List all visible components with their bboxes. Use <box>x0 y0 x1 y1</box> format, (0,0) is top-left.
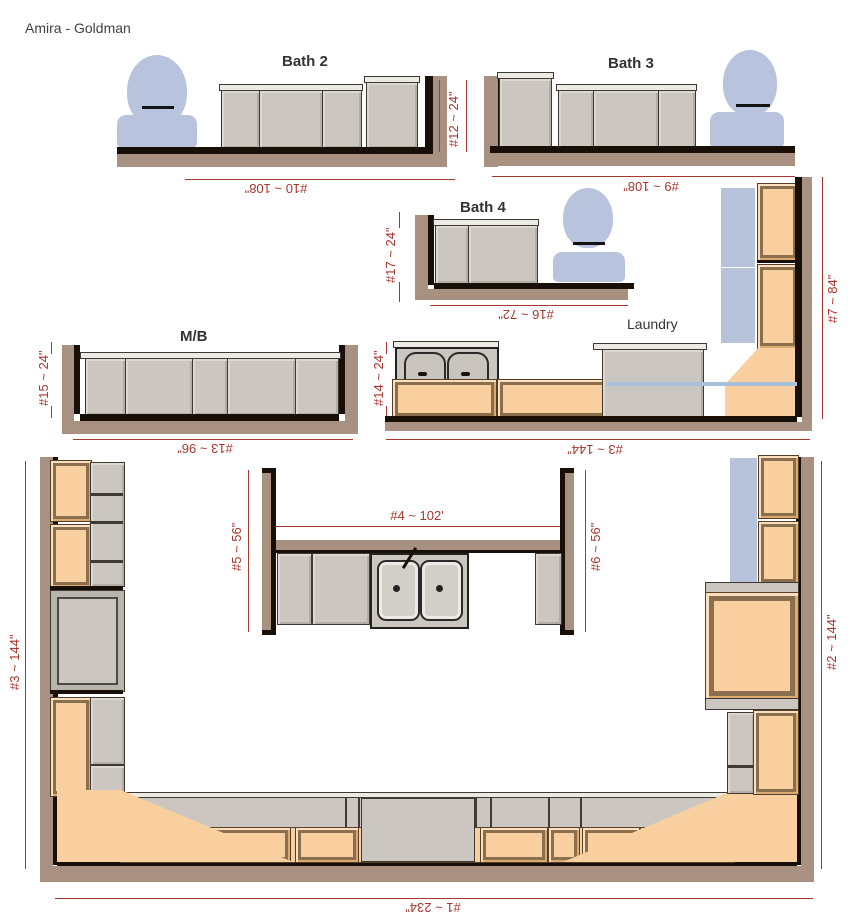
dim15-text: #15 ~ 24" <box>37 354 50 406</box>
dim9-text: #9 ~ 108" <box>591 180 711 193</box>
laundry-wall-edge <box>795 177 802 417</box>
laundry-floor <box>385 422 812 431</box>
mb-cabinet <box>125 358 193 416</box>
bath3-floor <box>484 153 795 166</box>
bath3-toilet-base <box>710 112 784 148</box>
cabinet-separator <box>580 797 582 827</box>
dim13-line <box>73 439 353 440</box>
island-post-cap <box>560 630 574 635</box>
kitchen-range-section <box>361 798 475 862</box>
laundry-label: Laundry <box>627 316 678 332</box>
kitchen-wall-cabinet-door <box>50 524 92 588</box>
bath3-cabinet <box>593 90 659 149</box>
mb-wall-right <box>345 345 358 421</box>
cabinet-separator <box>345 797 347 827</box>
floorplan-canvas: Amira - Goldman Bath 2 #10 ~ 108" #12 ~ … <box>0 0 855 915</box>
island-sink-drain <box>393 585 400 592</box>
cabinet-separator <box>358 797 360 827</box>
kitchen-upper-shelves <box>727 712 755 794</box>
bath2-label: Bath 2 <box>282 53 328 70</box>
dim5-text: #5 ~ 56" <box>230 505 243 589</box>
laundry-base-cabinet-door <box>497 379 609 419</box>
island-cabinet <box>535 553 562 625</box>
bath4-label: Bath 4 <box>460 199 506 216</box>
dim7-text: #7 ~ 84" <box>826 268 839 330</box>
kitchen-wall-cabinet-door <box>50 697 92 797</box>
dim14-text: #14 ~ 24" <box>372 354 385 406</box>
mb-floor <box>62 421 358 434</box>
cabinet-separator <box>548 797 550 827</box>
island-post-cap <box>560 468 574 473</box>
bath4-toilet-base <box>553 252 625 282</box>
island-post-left <box>262 472 271 632</box>
dim2-line <box>821 461 822 869</box>
kitchen-base-door <box>480 827 548 863</box>
dim3-text: #3 ~ 144" <box>8 616 21 708</box>
island-post-right <box>565 472 574 632</box>
dim5-line <box>248 470 249 632</box>
kitchen-upper-shelves <box>90 765 125 793</box>
dim13-text: #13 ~ 96" <box>145 442 265 455</box>
laundry-cabinet-rail <box>757 260 797 263</box>
kitchen-upper-shelves <box>90 697 125 765</box>
dim14-line-top <box>386 342 387 354</box>
dim17-text: #17 ~ 24" <box>384 227 397 283</box>
bath4-cabinet <box>468 225 538 284</box>
dim3-laundry-line <box>386 439 810 440</box>
drawing-title: Amira - Goldman <box>25 20 131 36</box>
dim16-text: #16 ~ 72" <box>466 308 586 321</box>
cabinet-separator <box>490 797 492 827</box>
bath3-floor-edge <box>490 146 795 153</box>
bath4-wall <box>415 215 428 297</box>
dim7-line <box>822 177 823 419</box>
kitchen-large-cabinet <box>50 590 125 692</box>
laundry-base-cabinet-door <box>392 379 497 419</box>
shelf-line <box>727 765 753 768</box>
bath3-cabinet <box>558 90 594 149</box>
dim2-text: #2 ~ 144" <box>825 596 838 688</box>
laundry-appliance <box>721 188 755 267</box>
bath2-floor-edge <box>117 147 433 154</box>
bath4-toilet-tank <box>563 188 613 248</box>
kitchen-wall-cabinet-door <box>758 521 799 585</box>
island-sink-drain <box>436 585 443 592</box>
island-cabinet <box>277 553 312 625</box>
bath2-toilet-base <box>117 115 197 148</box>
shelf-line <box>90 521 123 524</box>
bath2-cabinet <box>259 90 323 149</box>
mb-cabinet <box>227 358 296 416</box>
kitchen-upper-shelves <box>90 462 125 587</box>
bath2-wall-edge <box>425 76 433 153</box>
dim4-text: #4 ~ 102' <box>357 509 477 522</box>
kitchen-wall-right <box>801 457 814 882</box>
bath2-floor <box>117 154 447 167</box>
dim3-line <box>25 461 26 869</box>
bath3-label: Bath 3 <box>608 55 654 72</box>
dim15-line-bottom <box>51 406 52 418</box>
bath2-tall-cabinet <box>366 82 418 149</box>
dim6-line <box>585 470 586 632</box>
bath3-cabinet <box>658 90 696 149</box>
kitchen-wall-bottom <box>40 866 814 882</box>
dim10-line <box>185 179 455 180</box>
dim1-text: #1 ~ 234" <box>373 901 493 914</box>
bath3-toilet-seat-line <box>736 104 770 107</box>
laundry-appliance <box>721 268 755 343</box>
dim16-line <box>430 305 628 306</box>
cabinet-divider <box>50 690 123 694</box>
mb-cabinet <box>85 358 126 416</box>
laundry-sink-drain <box>461 372 470 376</box>
kitchen-wall-cabinet-door <box>758 455 799 519</box>
mb-cabinet <box>192 358 228 416</box>
laundry-sink-drain <box>418 372 427 376</box>
dim15-line-top <box>51 342 52 354</box>
bath4-floor <box>415 289 628 300</box>
shelf-line <box>90 560 123 563</box>
bath2-cabinet <box>322 90 362 149</box>
kitchen-base-door <box>295 827 359 863</box>
kitchen-wall-cabinet-door <box>753 710 799 795</box>
mb-cabinet <box>295 358 339 416</box>
laundry-wall-cabinet-door <box>757 264 799 349</box>
island-post-cap <box>262 468 276 473</box>
laundry-wall-cabinet-door <box>757 183 799 261</box>
mb-label: M/B <box>180 328 208 345</box>
dim1-line <box>55 898 813 899</box>
bath3-tall-cabinet <box>499 78 552 149</box>
mb-wall-left <box>62 345 74 421</box>
kitchen-wall-cabinet-door <box>50 460 92 522</box>
bath2-cabinet <box>221 90 260 149</box>
dim3-laundry-text: #3 ~ 144" <box>535 443 655 456</box>
dim12-text: #12 ~ 24" <box>447 84 460 154</box>
dim6-text: #6 ~ 56" <box>589 505 602 589</box>
shelf-line <box>90 493 123 496</box>
mb-floor-edge <box>80 414 339 421</box>
dim4-line <box>275 526 560 527</box>
island-cabinet <box>312 553 370 625</box>
bath2-toilet-seat-line <box>142 106 174 109</box>
kitchen-appliance <box>730 458 757 583</box>
dim17-line-top <box>399 212 400 228</box>
laundry-counter-line <box>607 382 797 386</box>
bath4-toilet-seat-line <box>573 242 605 245</box>
cabinet-separator <box>475 797 477 827</box>
island-countertop <box>276 540 560 550</box>
bath4-cabinet <box>435 225 469 284</box>
dim17-line-bottom <box>399 282 400 302</box>
dim9-line <box>492 176 795 177</box>
dim12-line <box>439 80 440 152</box>
dim10-text: #10 ~ 108" <box>216 182 336 195</box>
laundry-wall <box>802 177 812 430</box>
cabinet-bottom-strip <box>705 698 799 710</box>
island-post-cap <box>262 630 276 635</box>
dim12-line2 <box>466 80 467 152</box>
kitchen-peninsula-cabinet <box>705 592 799 700</box>
